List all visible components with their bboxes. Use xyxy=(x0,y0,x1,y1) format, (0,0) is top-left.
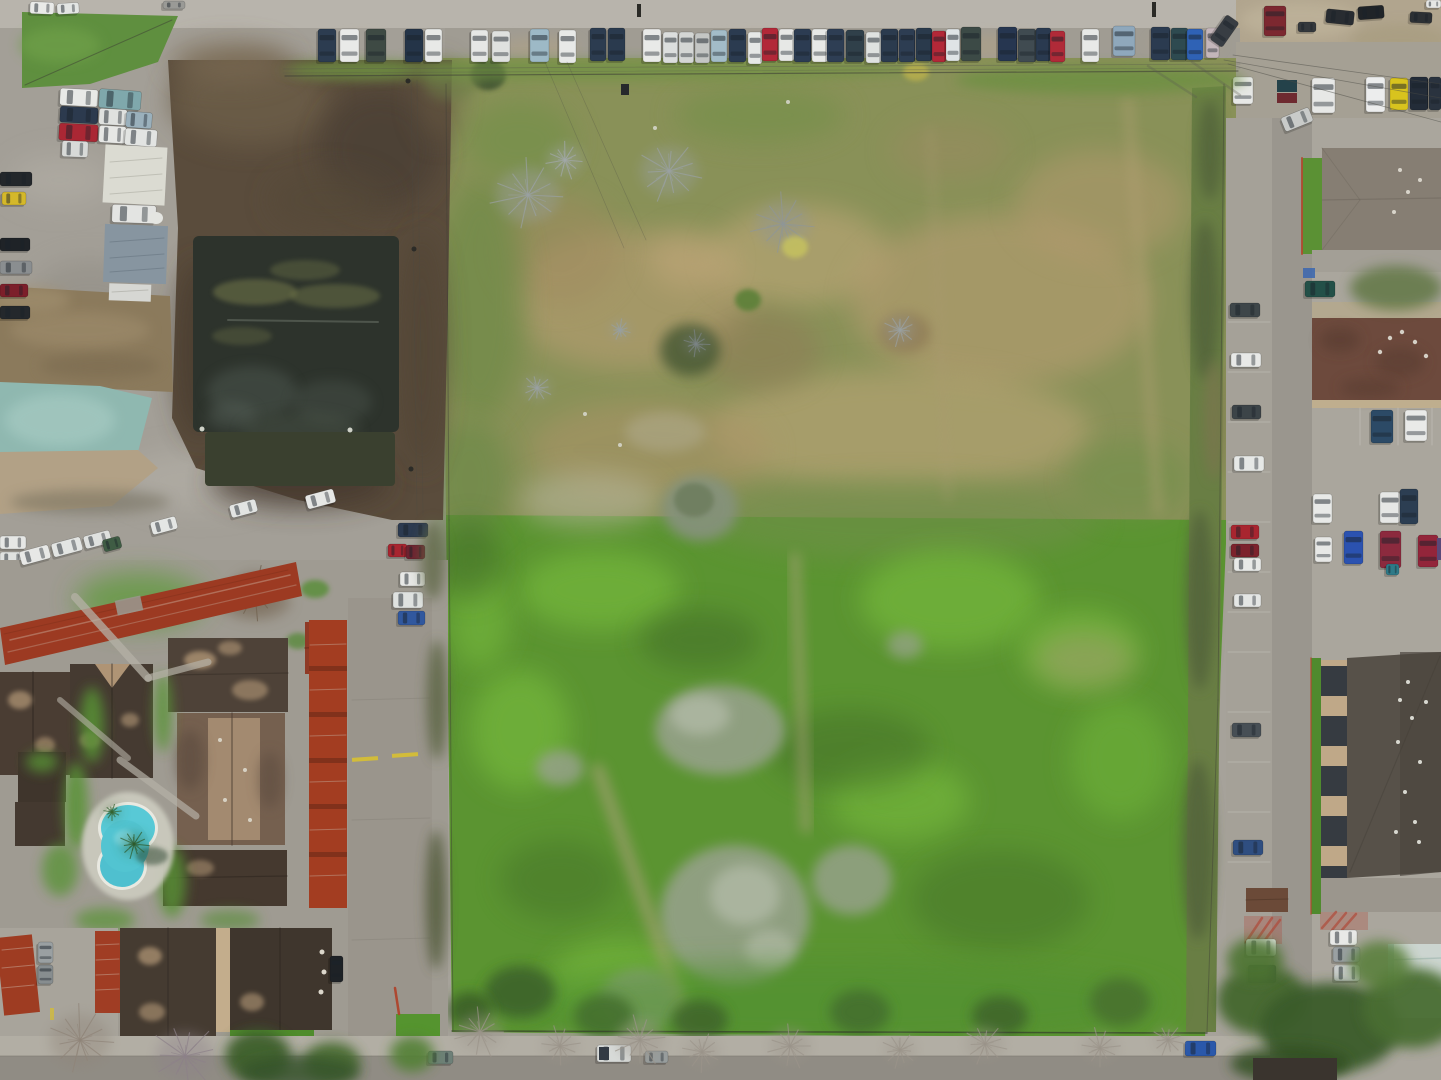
teal-pond-highlight xyxy=(5,394,115,446)
parked-car xyxy=(0,192,26,207)
green-patch xyxy=(1070,440,1190,520)
roof-tan-spot xyxy=(240,993,264,1011)
dirt-patch xyxy=(1035,632,1135,688)
parked-car xyxy=(0,172,32,188)
parked-car xyxy=(727,29,746,64)
roof-tan-spot xyxy=(121,713,139,727)
parked-car xyxy=(588,28,606,63)
parked-car xyxy=(1080,29,1099,64)
dead-grass-patch xyxy=(890,120,1010,180)
yellow-road-mark xyxy=(50,1008,54,1020)
parked-van xyxy=(864,32,881,65)
shrub-highlight xyxy=(710,865,780,925)
dark-tree xyxy=(1090,978,1150,1026)
facade-window-bay xyxy=(1321,716,1347,746)
roof-shade xyxy=(258,752,282,808)
parked-car xyxy=(36,942,53,965)
parked-car xyxy=(57,88,98,109)
court-marking xyxy=(213,279,297,305)
building-lawn-strip xyxy=(1311,658,1321,914)
roof-shade xyxy=(176,730,204,790)
scrub-dark xyxy=(1186,510,1214,690)
parked-car xyxy=(316,29,336,64)
apartment-roof xyxy=(230,928,332,1030)
utility-pole xyxy=(412,247,417,252)
parked-car xyxy=(1230,405,1261,421)
wet-shore-edge xyxy=(10,490,170,514)
brush-blotch xyxy=(170,42,290,82)
bottom-sidewalk xyxy=(0,1036,1441,1056)
roof-ac-unit xyxy=(320,950,325,955)
front-lawn xyxy=(1302,158,1322,254)
parked-car xyxy=(528,29,549,64)
parked-car xyxy=(1185,29,1203,62)
parked-car xyxy=(28,2,54,17)
parked-car xyxy=(1342,531,1363,566)
roof-vent xyxy=(1388,336,1392,340)
screenshot xyxy=(0,0,1441,1080)
dark-grass xyxy=(910,850,1090,950)
red-tile-carport-strip xyxy=(309,620,347,908)
grass-strip-below-row xyxy=(955,66,1245,94)
gray-shrub-cluster xyxy=(655,685,785,775)
handicap-stall-mark xyxy=(1303,268,1315,278)
parked-car xyxy=(1408,11,1433,25)
utility-pole xyxy=(409,467,414,472)
street-green-tree xyxy=(390,1036,434,1072)
parked-car xyxy=(1229,525,1259,541)
lawn-strip xyxy=(26,752,58,772)
parked-car xyxy=(606,28,625,63)
roof-vent xyxy=(218,738,222,742)
parked-van xyxy=(1403,410,1427,443)
utility-pole xyxy=(1152,2,1156,17)
roof-vent xyxy=(1410,716,1414,720)
fence-scrub xyxy=(426,830,446,970)
parked-car xyxy=(1111,26,1135,58)
lawn-strip xyxy=(154,672,172,752)
parked-car xyxy=(1310,78,1335,115)
parked-car xyxy=(0,261,32,276)
roof-vent xyxy=(1396,740,1400,744)
bottom-street xyxy=(0,1056,1441,1080)
aerial-photograph xyxy=(0,0,1441,1080)
bright-grass xyxy=(520,550,680,630)
dark-grass xyxy=(640,610,760,670)
parked-car xyxy=(996,27,1017,63)
parked-car xyxy=(914,28,932,63)
parked-car xyxy=(693,33,710,65)
parked-van xyxy=(391,592,423,610)
roof-vent xyxy=(1413,820,1417,824)
brush-blotch xyxy=(270,170,390,230)
roof-vent xyxy=(1406,680,1410,684)
court-bucket xyxy=(348,428,353,433)
roof-vent xyxy=(248,818,252,822)
roof-vent xyxy=(223,798,227,802)
roof-tan-spot xyxy=(35,737,55,753)
debris-speck xyxy=(786,100,790,104)
parked-car xyxy=(403,29,423,64)
complex-street xyxy=(348,598,432,1080)
parked-car xyxy=(1232,594,1261,609)
carport-gap xyxy=(309,758,347,763)
parked-car xyxy=(1230,723,1261,739)
carport-gap xyxy=(309,666,347,671)
parked-car xyxy=(1424,0,1441,10)
roof-blotch xyxy=(1340,378,1400,398)
parked-car xyxy=(897,29,915,64)
lawn-strip xyxy=(42,844,78,896)
parked-car xyxy=(944,29,960,63)
roof-tan-spot xyxy=(139,1003,165,1021)
parked-car xyxy=(0,238,30,253)
truck-bed xyxy=(599,1047,609,1060)
parked-car xyxy=(930,31,946,64)
parked-car xyxy=(1016,29,1036,64)
parked-car xyxy=(825,29,844,64)
dark-roof-building xyxy=(1253,1058,1337,1080)
parked-car xyxy=(1313,537,1332,564)
court-lower-band xyxy=(205,432,395,486)
parked-car xyxy=(959,27,981,63)
facade-window-bay xyxy=(1321,766,1347,796)
parked-car xyxy=(1356,5,1385,22)
parked-car xyxy=(96,108,127,128)
parked-car xyxy=(557,30,576,65)
roof-vent xyxy=(1406,190,1410,194)
parked-car xyxy=(96,125,126,145)
parked-car xyxy=(1328,930,1357,947)
parked-car xyxy=(0,284,28,299)
roof-vent xyxy=(1418,760,1422,764)
dark-grass xyxy=(500,840,620,920)
court-marking xyxy=(270,260,340,280)
parked-car xyxy=(1231,840,1263,857)
red-tile-roof xyxy=(95,931,120,1013)
roof-vent xyxy=(1413,340,1417,344)
parked-car xyxy=(1311,494,1332,525)
facade-window-bay xyxy=(1321,666,1347,696)
shrub-highlight xyxy=(670,695,730,735)
parked-car xyxy=(55,2,80,16)
street-car xyxy=(1183,1041,1216,1058)
roof-vent xyxy=(1378,350,1382,354)
parked-car xyxy=(641,29,661,64)
gray-shrub-cluster xyxy=(812,845,892,915)
utility-pole xyxy=(406,79,411,84)
dark-tree xyxy=(485,966,555,1018)
court-bucket xyxy=(200,427,205,432)
parked-car xyxy=(792,29,811,64)
parked-van xyxy=(110,204,157,226)
scrub-dark xyxy=(1191,220,1219,380)
parked-car xyxy=(396,611,425,627)
parked-car xyxy=(398,572,425,588)
debris-speck xyxy=(618,443,622,447)
slope-streak xyxy=(40,354,160,378)
parked-car xyxy=(1323,8,1355,27)
parked-car xyxy=(677,32,694,65)
roof-vent xyxy=(1418,178,1422,182)
parked-car xyxy=(396,523,428,539)
court-marking xyxy=(212,327,272,345)
parked-car xyxy=(36,965,53,986)
parked-car xyxy=(760,28,778,63)
carport-gap xyxy=(309,804,347,809)
parked-van xyxy=(746,32,762,66)
court-marking xyxy=(290,284,380,308)
dumpster xyxy=(1277,93,1297,103)
worn-pale-patch xyxy=(625,412,705,452)
green-tree xyxy=(1350,266,1441,310)
parked-car xyxy=(386,544,407,559)
parked-car xyxy=(1229,544,1259,559)
lawn-strip xyxy=(200,910,260,930)
parked-car xyxy=(709,30,727,64)
gray-shrub-cluster xyxy=(887,631,923,659)
roof-tan-spot xyxy=(186,860,214,876)
roof-tan-spot xyxy=(232,680,268,700)
parked-car xyxy=(1369,410,1393,445)
parked-truck xyxy=(1262,6,1286,38)
carport-gap xyxy=(309,852,347,857)
scrub-dark xyxy=(1182,760,1214,940)
parked-car xyxy=(1416,535,1438,569)
parked-car xyxy=(1232,558,1261,573)
roof-tan-spot xyxy=(218,641,242,655)
slope-streak xyxy=(10,312,150,348)
parked-car xyxy=(1364,77,1385,114)
dark-tree xyxy=(672,1000,728,1040)
bright-grass xyxy=(1070,700,1170,820)
green-bush xyxy=(735,289,761,311)
parked-car xyxy=(1378,492,1400,525)
gray-shrub-cluster xyxy=(536,750,584,786)
roof-vent xyxy=(1403,790,1407,794)
roof-tan-band xyxy=(208,718,260,840)
roof-blotch xyxy=(1320,328,1360,352)
parked-car xyxy=(60,140,89,159)
roof-vent xyxy=(243,768,247,772)
parked-car xyxy=(844,30,864,64)
parked-car xyxy=(0,306,30,321)
roof-vent xyxy=(1392,210,1396,214)
parked-car xyxy=(1232,456,1264,473)
green-patch xyxy=(675,87,845,143)
roof-vent xyxy=(1424,354,1428,358)
parked-car xyxy=(0,536,26,551)
building-gap xyxy=(216,928,230,1032)
green-tree xyxy=(1350,941,1410,989)
facade-window-bay xyxy=(1321,816,1347,846)
roof-ac-unit xyxy=(319,990,324,995)
roof-vent xyxy=(1398,698,1402,702)
roof-tan-spot xyxy=(8,691,32,709)
roof-vent xyxy=(1394,830,1398,834)
parked-car xyxy=(777,29,794,63)
debris-speck xyxy=(653,126,657,130)
green-patch xyxy=(301,580,329,598)
cabana-roof xyxy=(15,802,65,846)
dead-grass-patch xyxy=(650,230,730,290)
roof-vent xyxy=(1424,700,1428,704)
parked-car xyxy=(661,32,678,65)
parked-car xyxy=(1408,77,1428,112)
parked-car xyxy=(1048,31,1065,64)
parked-car xyxy=(1229,353,1261,369)
parked-car xyxy=(879,29,898,64)
flowering-shrub xyxy=(782,236,808,258)
parked-car xyxy=(1149,27,1170,62)
white-canopy xyxy=(103,144,168,205)
roof-vent xyxy=(1400,330,1404,334)
green-patch xyxy=(700,480,1100,560)
dark-tree xyxy=(830,990,890,1034)
trash-bin xyxy=(621,84,629,95)
utility-pole xyxy=(637,4,641,17)
white-dome-tank xyxy=(149,212,163,224)
parked-car xyxy=(1303,281,1335,299)
fence-scrub xyxy=(421,520,445,600)
scrub-dark xyxy=(1198,100,1222,200)
carport-gap xyxy=(309,712,347,717)
parked-car xyxy=(490,31,510,64)
parked-car xyxy=(1384,564,1399,577)
parked-car xyxy=(364,29,386,64)
building-walk xyxy=(1321,878,1441,912)
parked-car xyxy=(161,1,185,11)
roof-vent xyxy=(1398,168,1402,172)
bright-grass xyxy=(860,550,1040,650)
roof-vent xyxy=(1417,840,1421,844)
tan-walk-band xyxy=(1312,400,1441,408)
parked-car xyxy=(423,29,442,64)
parked-car xyxy=(469,30,488,64)
parked-car xyxy=(1398,489,1418,526)
worn-pale-patch xyxy=(520,472,660,528)
leafy-tree-core xyxy=(674,483,714,517)
parked-car xyxy=(338,29,359,64)
dark-grass xyxy=(770,710,930,790)
green-tree xyxy=(1227,938,1283,982)
parked-car xyxy=(1296,22,1316,34)
roof-blotch xyxy=(1375,347,1425,377)
roof-tan-spot xyxy=(138,947,162,965)
fence-scrub xyxy=(427,640,447,760)
parked-car xyxy=(1388,78,1408,112)
dead-grass-patch xyxy=(1015,150,1185,260)
parked-car xyxy=(328,956,343,984)
parked-car xyxy=(1228,303,1260,319)
debris-speck xyxy=(583,412,587,416)
roof-ac-unit xyxy=(322,970,327,975)
utility-trailer xyxy=(109,283,152,301)
car-sliver xyxy=(1437,538,1441,560)
